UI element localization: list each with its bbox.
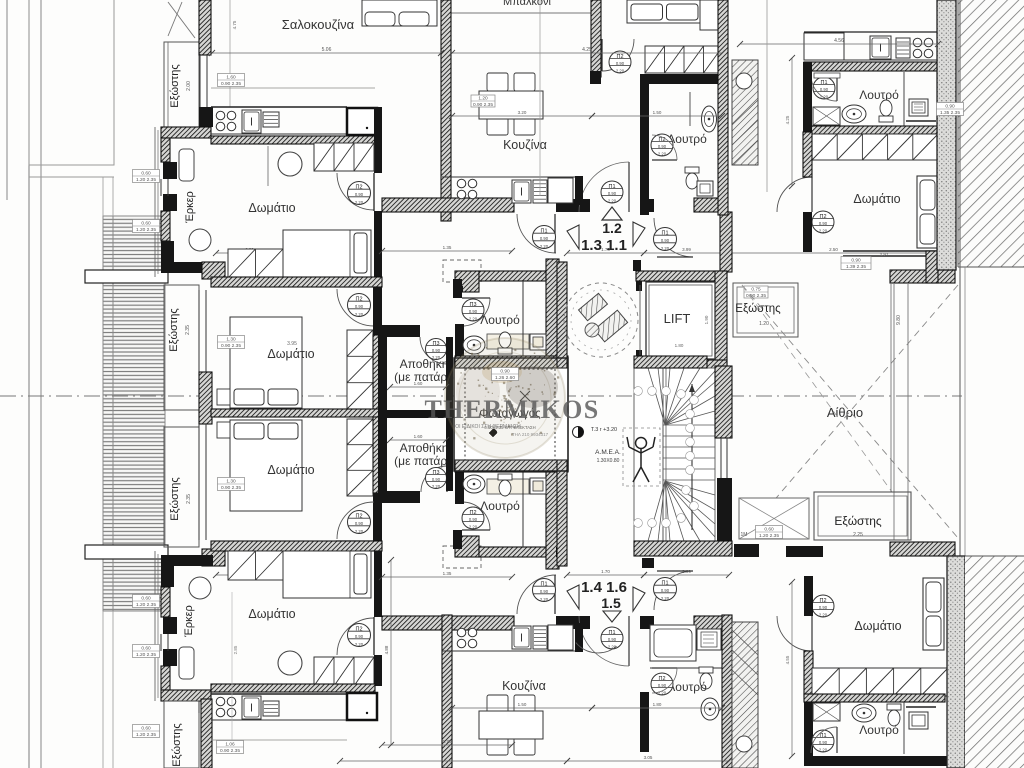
svg-text:Π1: Π1 (608, 630, 615, 636)
svg-text:0.60: 0.60 (764, 527, 774, 533)
svg-text:0.90: 0.90 (658, 144, 667, 149)
svg-text:0.90: 0.90 (355, 192, 364, 197)
svg-text:0.60: 0.60 (141, 646, 151, 652)
svg-text:2.00: 2.00 (186, 81, 192, 91)
svg-text:1.20 2.35: 1.20 2.35 (136, 652, 156, 658)
svg-text:1.70: 1.70 (443, 739, 452, 744)
svg-text:0.90 2.35: 0.90 2.35 (746, 293, 766, 299)
svg-text:1.2: 1.2 (602, 220, 622, 236)
svg-text:1.4 1.6: 1.4 1.6 (581, 579, 627, 596)
svg-text:2.20: 2.20 (469, 524, 478, 529)
svg-text:ΟΙ ΕΙΔΙΚΟΙ ΣΤΗ ΘΕΡΜΑΝΣΗ: ΟΙ ΕΙΔΙΚΟΙ ΣΤΗ ΘΕΡΜΑΝΣΗ (455, 424, 521, 430)
svg-text:Π2: Π2 (355, 514, 362, 520)
svg-text:0.90: 0.90 (540, 589, 549, 594)
svg-text:1.20 2.35: 1.20 2.35 (136, 602, 156, 608)
svg-text:Δωμάτιο: Δωμάτιο (267, 463, 314, 477)
svg-text:0.75: 0.75 (751, 287, 761, 293)
svg-text:Π2: Π2 (355, 297, 362, 303)
svg-text:Σαλοκουζίνα: Σαλοκουζίνα (282, 17, 355, 32)
svg-text:2.20: 2.20 (661, 596, 670, 601)
svg-text:0.90 2.35: 0.90 2.35 (221, 343, 241, 349)
svg-text:2.20: 2.20 (469, 316, 478, 321)
svg-text:2.20: 2.20 (819, 228, 828, 233)
svg-text:Π1: Π1 (819, 733, 826, 739)
svg-text:Εξώστης: Εξώστης (171, 723, 183, 766)
svg-text:Π3: Π3 (469, 302, 476, 308)
svg-text:Λουτρό: Λουτρό (480, 313, 520, 327)
svg-text:0.90: 0.90 (540, 236, 549, 241)
svg-text:Εξώστης: Εξώστης (169, 64, 181, 107)
svg-text:0.90: 0.90 (469, 517, 478, 522)
svg-text:Λουτρό: Λουτρό (859, 88, 899, 102)
svg-text:1.60: 1.60 (414, 381, 423, 386)
svg-text:0.90: 0.90 (355, 634, 364, 639)
svg-text:0.90: 0.90 (945, 104, 955, 110)
svg-text:2.20: 2.20 (819, 747, 828, 752)
svg-text:5.06: 5.06 (322, 47, 332, 53)
svg-text:0.60: 0.60 (141, 171, 151, 177)
svg-text:2.25: 2.25 (853, 532, 863, 538)
svg-text:1.30Χ0.80: 1.30Χ0.80 (597, 458, 620, 464)
svg-text:1.39 2.35: 1.39 2.35 (846, 264, 866, 270)
svg-text:Αποθήκη: Αποθήκη (400, 441, 449, 455)
svg-text:Τ.3 r +3.20: Τ.3 r +3.20 (591, 427, 617, 433)
svg-text:2.20: 2.20 (661, 246, 670, 251)
svg-text:3.05: 3.05 (644, 755, 653, 760)
svg-text:Α.Μ.Ε.Α.: Α.Μ.Ε.Α. (595, 449, 621, 456)
svg-text:2.35: 2.35 (185, 325, 191, 335)
svg-text:0.90 2.35: 0.90 2.35 (220, 748, 240, 754)
svg-text:4.56: 4.56 (834, 38, 844, 44)
svg-text:0.90: 0.90 (661, 588, 670, 593)
svg-text:Π2: Π2 (355, 627, 362, 633)
svg-text:3.99: 3.99 (682, 569, 691, 574)
svg-text:0.90: 0.90 (469, 309, 478, 314)
svg-text:4.25: 4.25 (785, 115, 790, 124)
svg-text:Π1: Π1 (661, 231, 668, 237)
svg-text:2.35: 2.35 (186, 494, 192, 504)
svg-text:0.90: 0.90 (608, 637, 617, 642)
svg-text:1.90: 1.90 (704, 315, 709, 324)
svg-text:Εξώστης: Εξώστης (735, 303, 781, 315)
svg-text:1.80: 1.80 (653, 702, 662, 707)
svg-text:0.90: 0.90 (355, 304, 364, 309)
svg-text:Π3: Π3 (432, 341, 439, 347)
svg-text:Π2: Π2 (819, 598, 826, 604)
svg-text:3.95: 3.95 (287, 341, 297, 347)
svg-text:1.20: 1.20 (759, 321, 769, 327)
svg-text:0.90: 0.90 (820, 87, 829, 92)
svg-text:Λουτρό: Λουτρό (859, 723, 899, 737)
svg-text:Π2: Π2 (819, 214, 826, 220)
svg-text:4.88: 4.88 (384, 645, 389, 654)
svg-text:Π2: Π2 (469, 510, 476, 516)
svg-text:0.60: 0.60 (141, 221, 151, 227)
svg-text:2.20: 2.20 (355, 529, 364, 534)
svg-text:Π2: Π2 (355, 185, 362, 191)
svg-text:Έρκερ: Έρκερ (184, 191, 196, 224)
svg-text:0.90: 0.90 (500, 369, 510, 375)
svg-text:1.30: 1.30 (226, 337, 236, 343)
svg-text:Εξώστης: Εξώστης (169, 477, 181, 520)
svg-text:2.20: 2.20 (355, 200, 364, 205)
svg-text:0.90 2.35: 0.90 2.35 (221, 81, 241, 87)
svg-text:1.30: 1.30 (226, 479, 236, 485)
svg-text:Δωμάτιο: Δωμάτιο (248, 607, 295, 621)
svg-text:2.20: 2.20 (658, 151, 667, 156)
svg-text:ΤΗΛ 210 9934317: ΤΗΛ 210 9934317 (512, 432, 549, 437)
svg-text:Π2: Π2 (658, 676, 665, 682)
svg-text:4.25: 4.25 (582, 47, 592, 53)
svg-text:Μπαλκόνι: Μπαλκόνι (503, 0, 551, 8)
svg-text:0.90: 0.90 (658, 683, 667, 688)
svg-text:1.35 2.35: 1.35 2.35 (940, 110, 960, 116)
svg-text:Π1: Π1 (661, 581, 668, 587)
svg-text:0.90: 0.90 (608, 191, 617, 196)
svg-text:1.20 2.35: 1.20 2.35 (136, 732, 156, 738)
svg-text:1.70: 1.70 (601, 569, 610, 574)
svg-text:0.90 2.35: 0.90 2.35 (473, 102, 493, 108)
svg-text:2.85: 2.85 (233, 645, 238, 654)
svg-text:1.20: 1.20 (478, 96, 488, 102)
svg-text:2.97: 2.97 (880, 252, 889, 257)
svg-text:2.20: 2.20 (616, 68, 625, 73)
svg-text:2.20: 2.20 (432, 484, 441, 489)
svg-text:3.99: 3.99 (682, 247, 691, 252)
svg-text:2.20: 2.20 (355, 642, 364, 647)
svg-text:Λουτρό: Λουτρό (480, 499, 520, 513)
svg-text:Π1: Π1 (540, 582, 547, 588)
svg-text:0.90: 0.90 (819, 605, 828, 610)
svg-text:1.5: 1.5 (601, 595, 621, 611)
svg-text:(με πατάρι): (με πατάρι) (394, 370, 454, 384)
svg-text:1.60: 1.60 (226, 75, 236, 81)
svg-text:1.20 2.35: 1.20 2.35 (136, 177, 156, 183)
svg-text:Π2: Π2 (658, 137, 665, 143)
svg-text:4.55: 4.55 (785, 655, 790, 664)
svg-text:0.90: 0.90 (819, 221, 828, 226)
svg-text:1.20 2.35: 1.20 2.35 (136, 227, 156, 233)
svg-text:Δωμάτιο: Δωμάτιο (853, 192, 900, 206)
svg-text:0.90: 0.90 (819, 740, 828, 745)
svg-text:Έρκερ: Έρκερ (183, 605, 195, 638)
svg-text:Π3: Π3 (432, 470, 439, 476)
svg-text:Π2: Π2 (616, 54, 623, 60)
svg-text:0.90 2.35: 0.90 2.35 (221, 485, 241, 491)
svg-text:1.35: 1.35 (443, 571, 452, 576)
svg-text:Π1: Π1 (540, 229, 547, 235)
svg-text:0.60: 0.60 (141, 726, 151, 732)
svg-text:1.50: 1.50 (653, 110, 662, 115)
svg-text:2.20: 2.20 (540, 244, 549, 249)
svg-text:0.90: 0.90 (851, 258, 861, 264)
svg-text:Δωμάτιο: Δωμάτιο (267, 347, 314, 361)
svg-text:0.90: 0.90 (616, 61, 625, 66)
svg-text:0.60: 0.60 (141, 596, 151, 602)
svg-text:2.50: 2.50 (829, 247, 838, 252)
svg-text:2.20: 2.20 (819, 612, 828, 617)
svg-text:2.20: 2.20 (355, 312, 364, 317)
svg-text:0.90: 0.90 (355, 521, 364, 526)
svg-text:1Μ: 1Μ (741, 532, 748, 538)
svg-text:Αποθήκη: Αποθήκη (400, 357, 449, 371)
svg-text:9.80: 9.80 (896, 315, 902, 325)
svg-text:Εξώστης: Εξώστης (168, 308, 180, 351)
svg-text:4.75: 4.75 (232, 20, 237, 29)
svg-text:0.90: 0.90 (661, 238, 670, 243)
svg-text:Εξώστης: Εξώστης (834, 514, 882, 528)
svg-text:1.50: 1.50 (518, 702, 527, 707)
svg-text:1.20 2.35: 1.20 2.35 (759, 533, 779, 539)
svg-text:Π1: Π1 (820, 80, 827, 86)
svg-text:THERMIKOS: THERMIKOS (425, 395, 600, 424)
svg-text:2.20: 2.20 (608, 198, 617, 203)
svg-text:1.70: 1.70 (601, 247, 610, 252)
svg-text:Δωμάτιο: Δωμάτιο (854, 619, 901, 633)
svg-text:Π1: Π1 (608, 184, 615, 190)
svg-text:1.26 2.60: 1.26 2.60 (495, 375, 515, 381)
svg-text:LIFT: LIFT (664, 311, 691, 326)
svg-text:0.90: 0.90 (432, 348, 441, 353)
svg-text:Κουζίνα: Κουζίνα (502, 679, 546, 693)
svg-text:1.06: 1.06 (225, 742, 235, 748)
svg-text:2.20: 2.20 (540, 597, 549, 602)
svg-text:1.80: 1.80 (675, 343, 684, 348)
svg-text:0.90: 0.90 (432, 477, 441, 482)
svg-text:1.35: 1.35 (443, 245, 452, 250)
svg-text:3.20: 3.20 (518, 110, 527, 115)
svg-text:Δωμάτιο: Δωμάτιο (248, 201, 295, 215)
svg-text:1.60: 1.60 (414, 434, 423, 439)
